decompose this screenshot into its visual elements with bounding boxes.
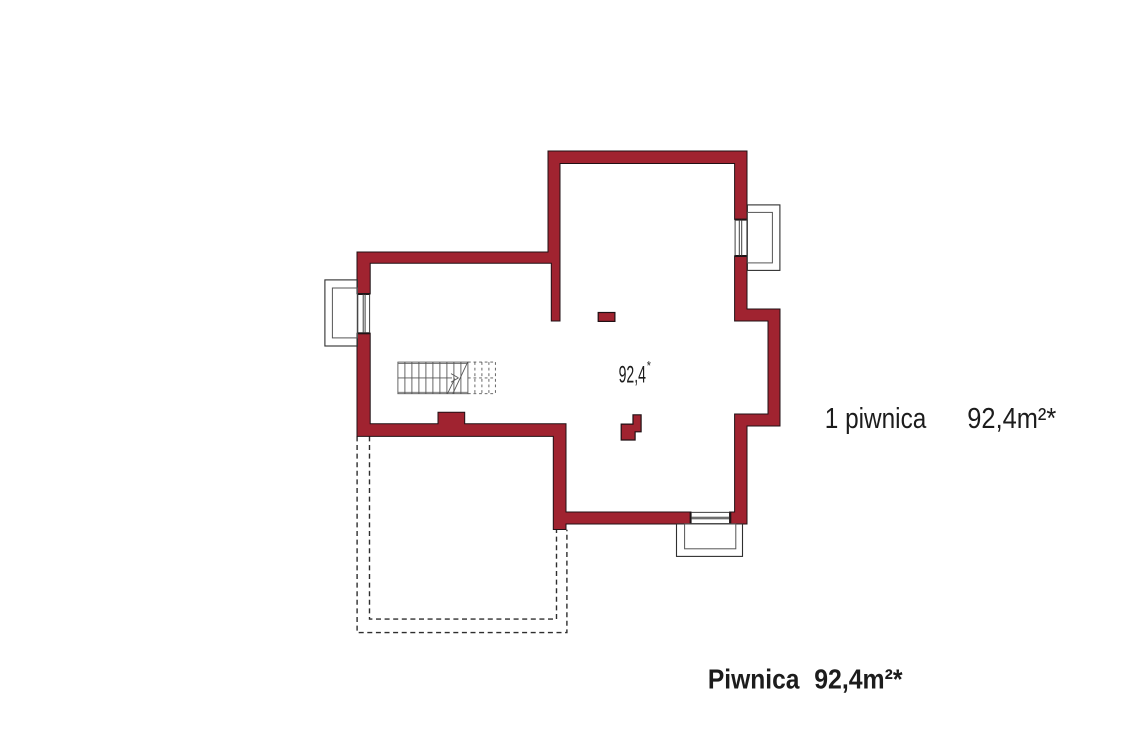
svg-text:92,4m²*: 92,4m²*	[814, 664, 903, 695]
svg-text:1 piwnica: 1 piwnica	[825, 402, 927, 434]
svg-text:92,4m²*: 92,4m²*	[967, 402, 1056, 434]
svg-text:*: *	[647, 359, 651, 373]
svg-text:Piwnica: Piwnica	[708, 664, 800, 695]
svg-text:92,4: 92,4	[619, 362, 646, 389]
